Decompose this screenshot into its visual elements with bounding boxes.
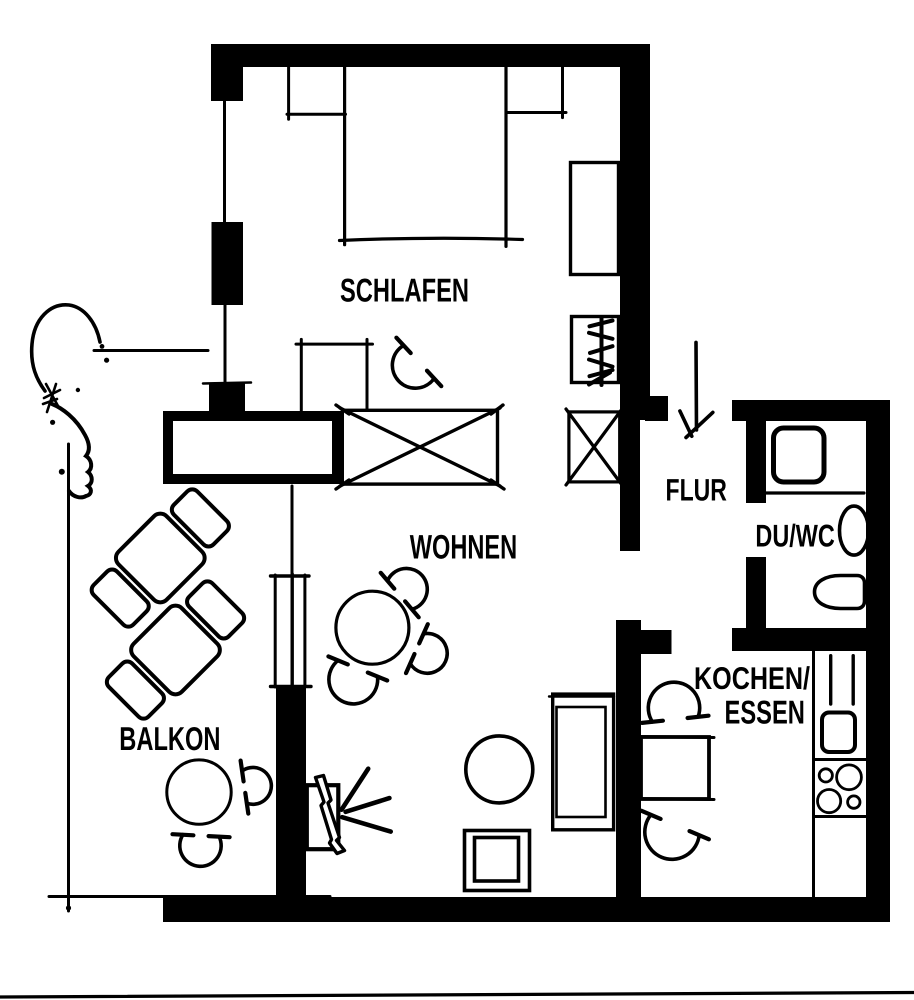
svg-text:KOCHEN/: KOCHEN/ [694, 660, 810, 696]
svg-text:FLUR: FLUR [666, 473, 727, 508]
svg-text:WOHNEN: WOHNEN [410, 529, 518, 567]
svg-text:BALKON: BALKON [119, 720, 220, 757]
svg-text:DU/WC: DU/WC [755, 517, 834, 553]
svg-text:SCHLAFEN: SCHLAFEN [340, 272, 469, 309]
svg-text:ESSEN: ESSEN [725, 693, 805, 730]
